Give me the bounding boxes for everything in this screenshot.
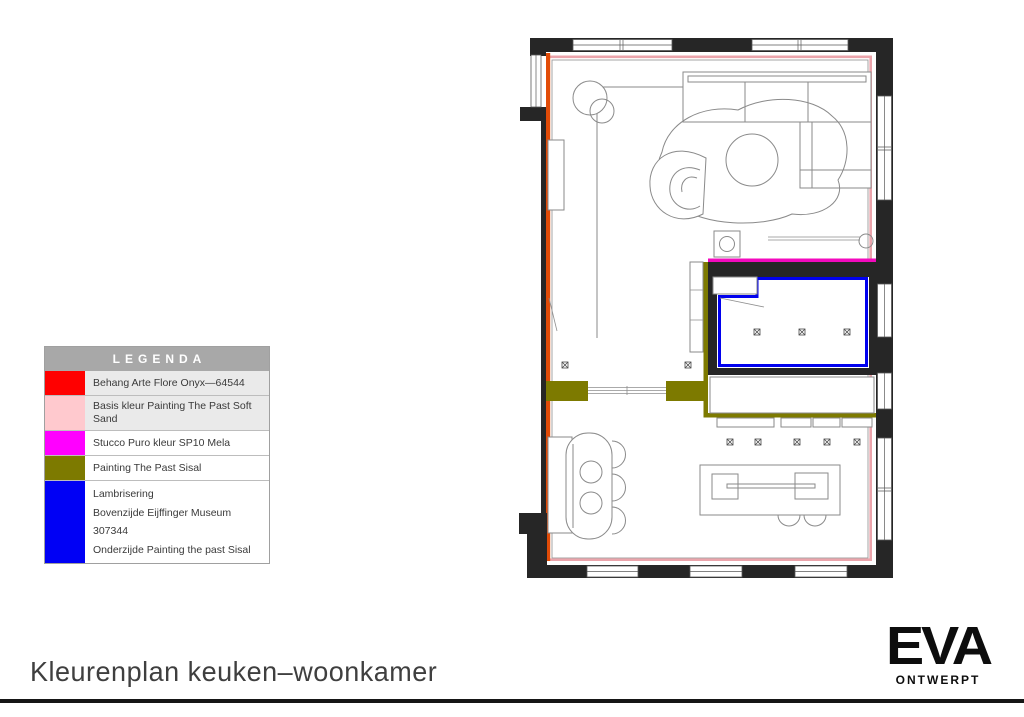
dining-set <box>548 433 626 539</box>
media-unit <box>714 231 873 257</box>
page-title: Kleurenplan keuken–woonkamer <box>30 656 437 688</box>
pantry-room <box>708 262 877 375</box>
accent-magenta-wall <box>708 259 876 263</box>
brand-name: EVA <box>886 620 990 672</box>
brand-logo: EVA ONTWERPT <box>884 620 992 687</box>
bottom-rule <box>0 699 1024 703</box>
door-post-right <box>666 381 708 401</box>
coffee-table <box>726 134 778 186</box>
sliding-door <box>588 386 666 395</box>
floor-plan <box>0 0 1024 717</box>
armchair <box>650 151 706 219</box>
kitchen-counter <box>710 377 874 427</box>
color-plan-page: LEGENDA Behang Arte Flore Onyx—64544 Bas… <box>0 0 1024 717</box>
door-post-left <box>546 381 588 401</box>
kitchen-island <box>700 465 840 526</box>
wall-cabinet <box>548 140 564 210</box>
tall-cabinet <box>690 262 703 352</box>
